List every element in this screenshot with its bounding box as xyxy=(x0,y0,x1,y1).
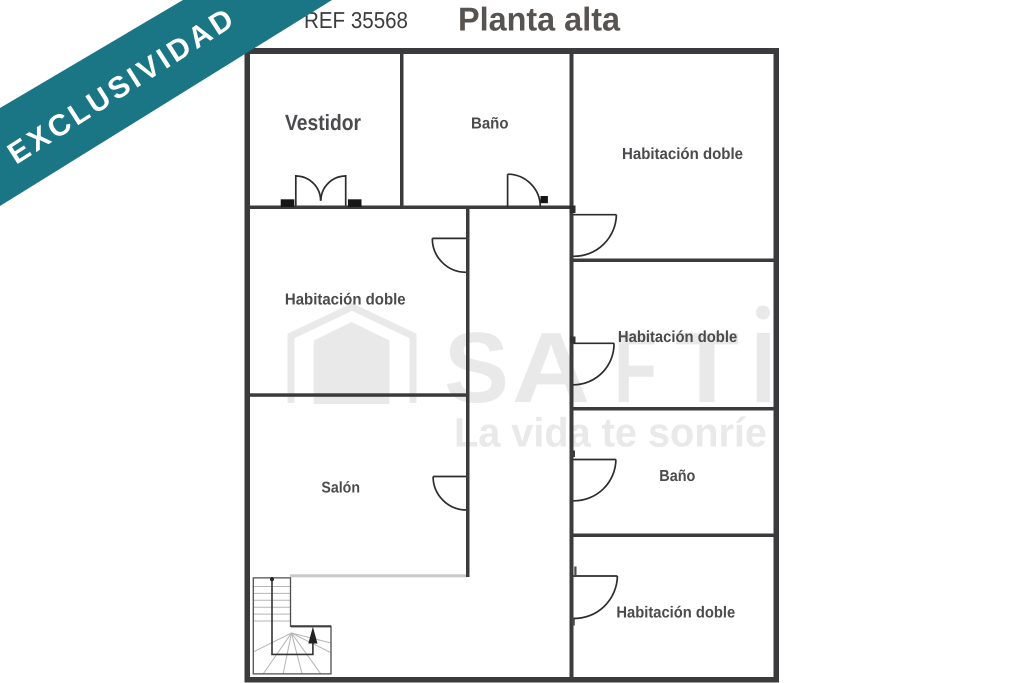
svg-text:Salón: Salón xyxy=(321,479,360,496)
svg-text:Habitación doble: Habitación doble xyxy=(618,329,737,346)
svg-text:REF 35568: REF 35568 xyxy=(304,7,408,33)
svg-text:Planta alta: Planta alta xyxy=(458,0,621,37)
svg-text:Habitación doble: Habitación doble xyxy=(616,604,735,621)
svg-text:Baño: Baño xyxy=(659,468,695,485)
svg-text:Habitación doble: Habitación doble xyxy=(622,146,743,163)
svg-text:S: S xyxy=(444,312,509,424)
svg-text:Vestidor: Vestidor xyxy=(285,110,361,135)
svg-text:La vida te sonríe: La vida te sonríe xyxy=(454,410,767,456)
svg-text:Habitación doble: Habitación doble xyxy=(285,291,406,308)
svg-text:Baño: Baño xyxy=(471,115,509,132)
